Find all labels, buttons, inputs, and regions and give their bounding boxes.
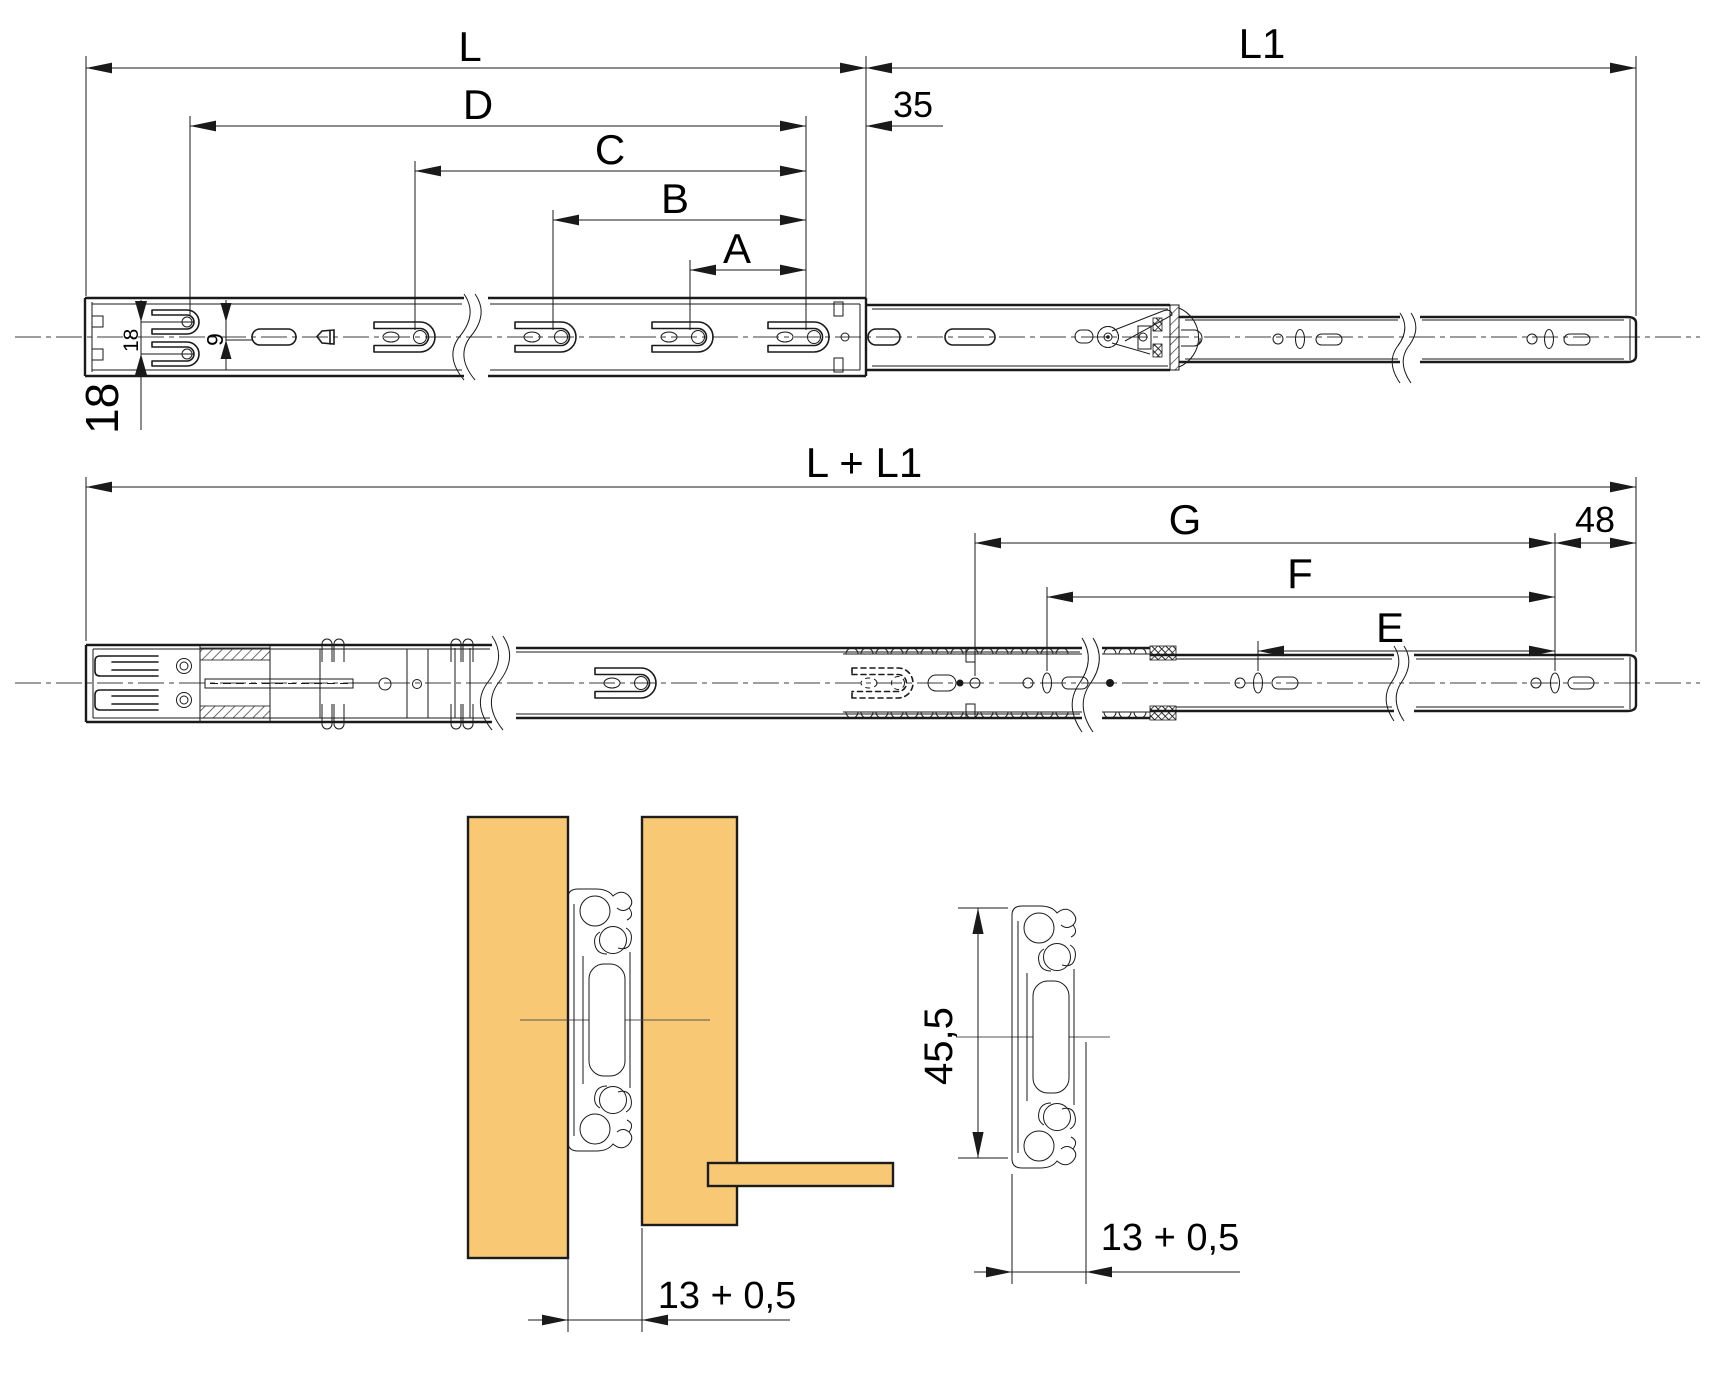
end-cap-hatched bbox=[1170, 305, 1179, 370]
dim-label-18-rows: 18 bbox=[120, 329, 143, 352]
dim-label-D: D bbox=[463, 81, 493, 128]
dim-label-L1: L1 bbox=[1239, 20, 1286, 67]
break-line bbox=[1392, 313, 1416, 383]
drawer-bottom-panel bbox=[708, 1163, 893, 1186]
dim-label-F: F bbox=[1287, 550, 1313, 597]
dim-label-9: 9 bbox=[202, 333, 228, 346]
height-dimension: 45,5 bbox=[917, 908, 1008, 1158]
closed-view-dimensions: L L1 D 35 C B A 18 9 18 bbox=[76, 20, 1636, 434]
intermediate-member-extended bbox=[516, 638, 1176, 732]
dim-label-35: 35 bbox=[893, 84, 933, 125]
rear-hook-square bbox=[92, 349, 103, 360]
drawer-member bbox=[1179, 313, 1636, 383]
dim-label-G: G bbox=[1169, 496, 1202, 543]
installation-cross-section: 13 + 0,5 bbox=[468, 817, 893, 1332]
dim-label-18-edge: 18 bbox=[76, 383, 128, 434]
dim-label-A: A bbox=[723, 225, 751, 272]
extended-slide-view: L + L1 G 48 F E bbox=[15, 439, 1700, 732]
dim-label-L-plus-L1: L + L1 bbox=[806, 439, 922, 486]
dim-label-C: C bbox=[595, 126, 625, 173]
cabinet-side-panel bbox=[468, 817, 568, 1258]
rear-block-hatch bbox=[200, 706, 270, 718]
dim-label-B: B bbox=[661, 175, 689, 222]
dim-label-L: L bbox=[458, 23, 481, 70]
drawer-slide-technical-drawing: L L1 D 35 C B A 18 9 18 bbox=[0, 0, 1711, 1389]
closed-slide-view: L L1 D 35 C B A 18 9 18 bbox=[15, 20, 1700, 434]
profile-cross-section: 45,5 13 + 0,5 bbox=[917, 906, 1240, 1284]
dim-label-48: 48 bbox=[1575, 499, 1615, 540]
cabinet-member-extended bbox=[86, 639, 492, 729]
disconnect-latch bbox=[1075, 310, 1172, 357]
rear-block-hatch bbox=[200, 648, 270, 660]
rear-hook-square bbox=[92, 316, 103, 327]
dim-label-45-5: 45,5 bbox=[917, 1007, 961, 1085]
dim-label-13-05-right: 13 + 0,5 bbox=[1101, 1217, 1239, 1259]
dim-label-E: E bbox=[1376, 604, 1404, 651]
extended-view-dimensions: L + L1 G 48 F E bbox=[86, 439, 1636, 676]
groove-dimension-right: 13 + 0,5 bbox=[974, 1042, 1240, 1284]
technical-drawing-page: L L1 D 35 C B A 18 9 18 bbox=[0, 0, 1711, 1389]
dim-label-13-05-left: 13 + 0,5 bbox=[658, 1275, 796, 1317]
